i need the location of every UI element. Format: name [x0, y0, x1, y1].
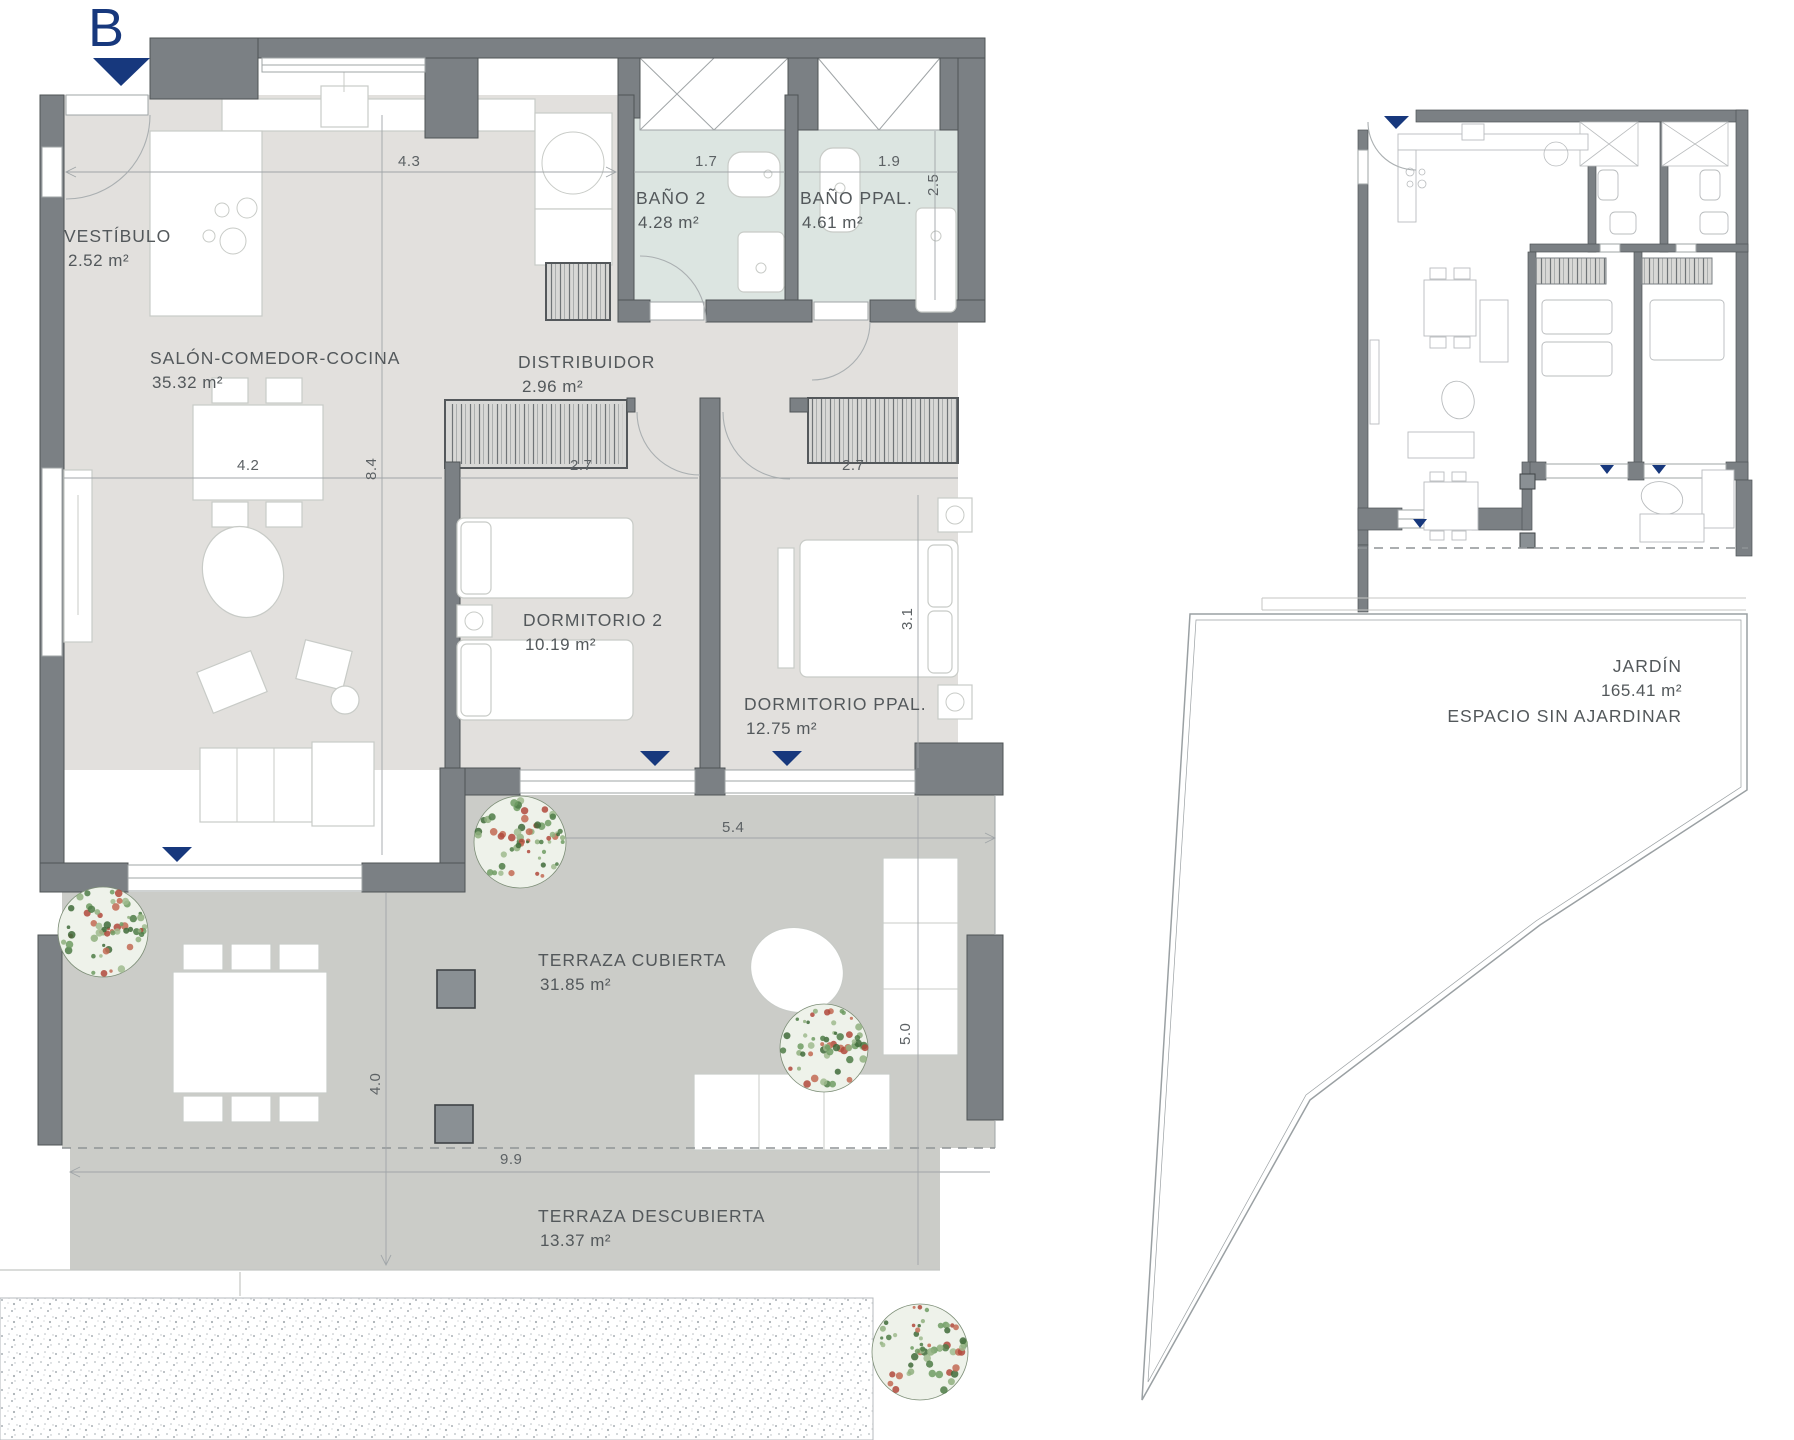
svg-text:SALÓN-COMEDOR-COCINA: SALÓN-COMEDOR-COCINA — [150, 347, 400, 368]
plant-icon — [58, 887, 148, 977]
kitchen-cabinet — [535, 209, 612, 265]
svg-text:JARDÍN: JARDÍN — [1613, 656, 1682, 676]
dining-table — [193, 405, 323, 500]
svg-text:2.96 m²: 2.96 m² — [522, 377, 583, 396]
main-plan: 4.3 1.7 1.9 2.5 4.2 8.4 2.7 2.7 3.1 5.4 … — [0, 0, 1003, 1440]
kitchen-sink — [321, 86, 368, 127]
skylight-icon — [640, 58, 788, 130]
dim-label: 4.3 — [398, 153, 420, 170]
svg-text:4.28 m²: 4.28 m² — [638, 213, 699, 232]
svg-text:DISTRIBUIDOR: DISTRIBUIDOR — [518, 352, 655, 372]
svg-text:TERRAZA DESCUBIERTA: TERRAZA DESCUBIERTA — [538, 1206, 765, 1226]
fridge-niche — [535, 113, 612, 209]
dim-label: 2.5 — [925, 174, 942, 196]
plant-icon — [872, 1304, 968, 1400]
svg-text:VESTÍBULO: VESTÍBULO — [64, 226, 171, 246]
terrace-table — [173, 972, 327, 1093]
unit-letter: B — [88, 0, 124, 58]
dim-label: 9.9 — [500, 1151, 522, 1168]
side-table — [331, 686, 359, 714]
svg-text:BAÑO 2: BAÑO 2 — [636, 187, 706, 208]
skylight-icon — [818, 58, 940, 130]
svg-text:2.52 m²: 2.52 m² — [68, 251, 129, 270]
svg-text:4.61 m²: 4.61 m² — [802, 213, 863, 232]
svg-text:10.19 m²: 10.19 m² — [525, 635, 596, 654]
ground-texture — [0, 1298, 873, 1440]
dim-label: 4.2 — [237, 457, 259, 474]
plant-icon — [780, 1004, 868, 1092]
kitchen-counter-top — [222, 99, 535, 131]
garden-inner-border — [1148, 620, 1741, 1382]
mini-furniture — [1370, 124, 1734, 548]
dim-label: 5.4 — [722, 819, 744, 836]
svg-text:ESPACIO SIN AJARDINAR: ESPACIO SIN AJARDINAR — [1447, 706, 1682, 726]
garden-area — [1142, 614, 1747, 1400]
svg-text:35.32 m²: 35.32 m² — [152, 373, 223, 392]
svg-text:12.75 m²: 12.75 m² — [746, 719, 817, 738]
sofa — [200, 748, 312, 822]
terrace-sofa — [883, 858, 958, 1055]
svg-text:DORMITORIO PPAL.: DORMITORIO PPAL. — [744, 694, 927, 714]
svg-text:165.41 m²: 165.41 m² — [1601, 681, 1682, 700]
mini-plan — [1262, 110, 1752, 612]
exit-arrow-icon — [162, 847, 192, 862]
floor-plan-page: 4.3 1.7 1.9 2.5 4.2 8.4 2.7 2.7 3.1 5.4 … — [0, 0, 1794, 1440]
column — [435, 1105, 473, 1143]
utility-closet — [546, 263, 610, 320]
dim-label: 2.7 — [570, 457, 592, 474]
garden: JARDÍN 165.41 m² ESPACIO SIN AJARDINAR — [1142, 614, 1747, 1400]
terrace-sofa — [694, 1074, 890, 1150]
chaise — [312, 742, 374, 826]
dim-label: 3.1 — [899, 608, 916, 630]
plant-icon — [474, 796, 566, 888]
dim-label: 8.4 — [363, 458, 380, 480]
svg-text:TERRAZA CUBIERTA: TERRAZA CUBIERTA — [538, 950, 726, 970]
svg-text:13.37 m²: 13.37 m² — [540, 1231, 611, 1250]
entry-arrow-icon — [93, 58, 150, 86]
column — [437, 970, 475, 1008]
mini-skylights — [1580, 122, 1728, 166]
kitchen-counter-left — [150, 131, 262, 316]
dim-label: 1.9 — [878, 153, 900, 170]
wardrobe-dorm-ppal — [808, 398, 958, 463]
svg-text:DORMITORIO 2: DORMITORIO 2 — [523, 610, 663, 630]
floor-plan-svg: 4.3 1.7 1.9 2.5 4.2 8.4 2.7 2.7 3.1 5.4 … — [0, 0, 1794, 1440]
dim-label: 2.7 — [842, 457, 864, 474]
nightstand — [938, 685, 972, 719]
mini-entry-arrow-icon — [1384, 116, 1409, 129]
dim-label: 5.0 — [897, 1023, 914, 1045]
dim-label: 1.7 — [695, 153, 717, 170]
nightstand — [457, 605, 492, 637]
svg-text:31.85 m²: 31.85 m² — [540, 975, 611, 994]
label-jardin: JARDÍN 165.41 m² ESPACIO SIN AJARDINAR — [1447, 656, 1682, 726]
svg-text:BAÑO PPAL.: BAÑO PPAL. — [800, 187, 913, 208]
dim-label: 4.0 — [367, 1073, 384, 1095]
bench — [778, 548, 794, 668]
nightstand — [938, 498, 972, 532]
